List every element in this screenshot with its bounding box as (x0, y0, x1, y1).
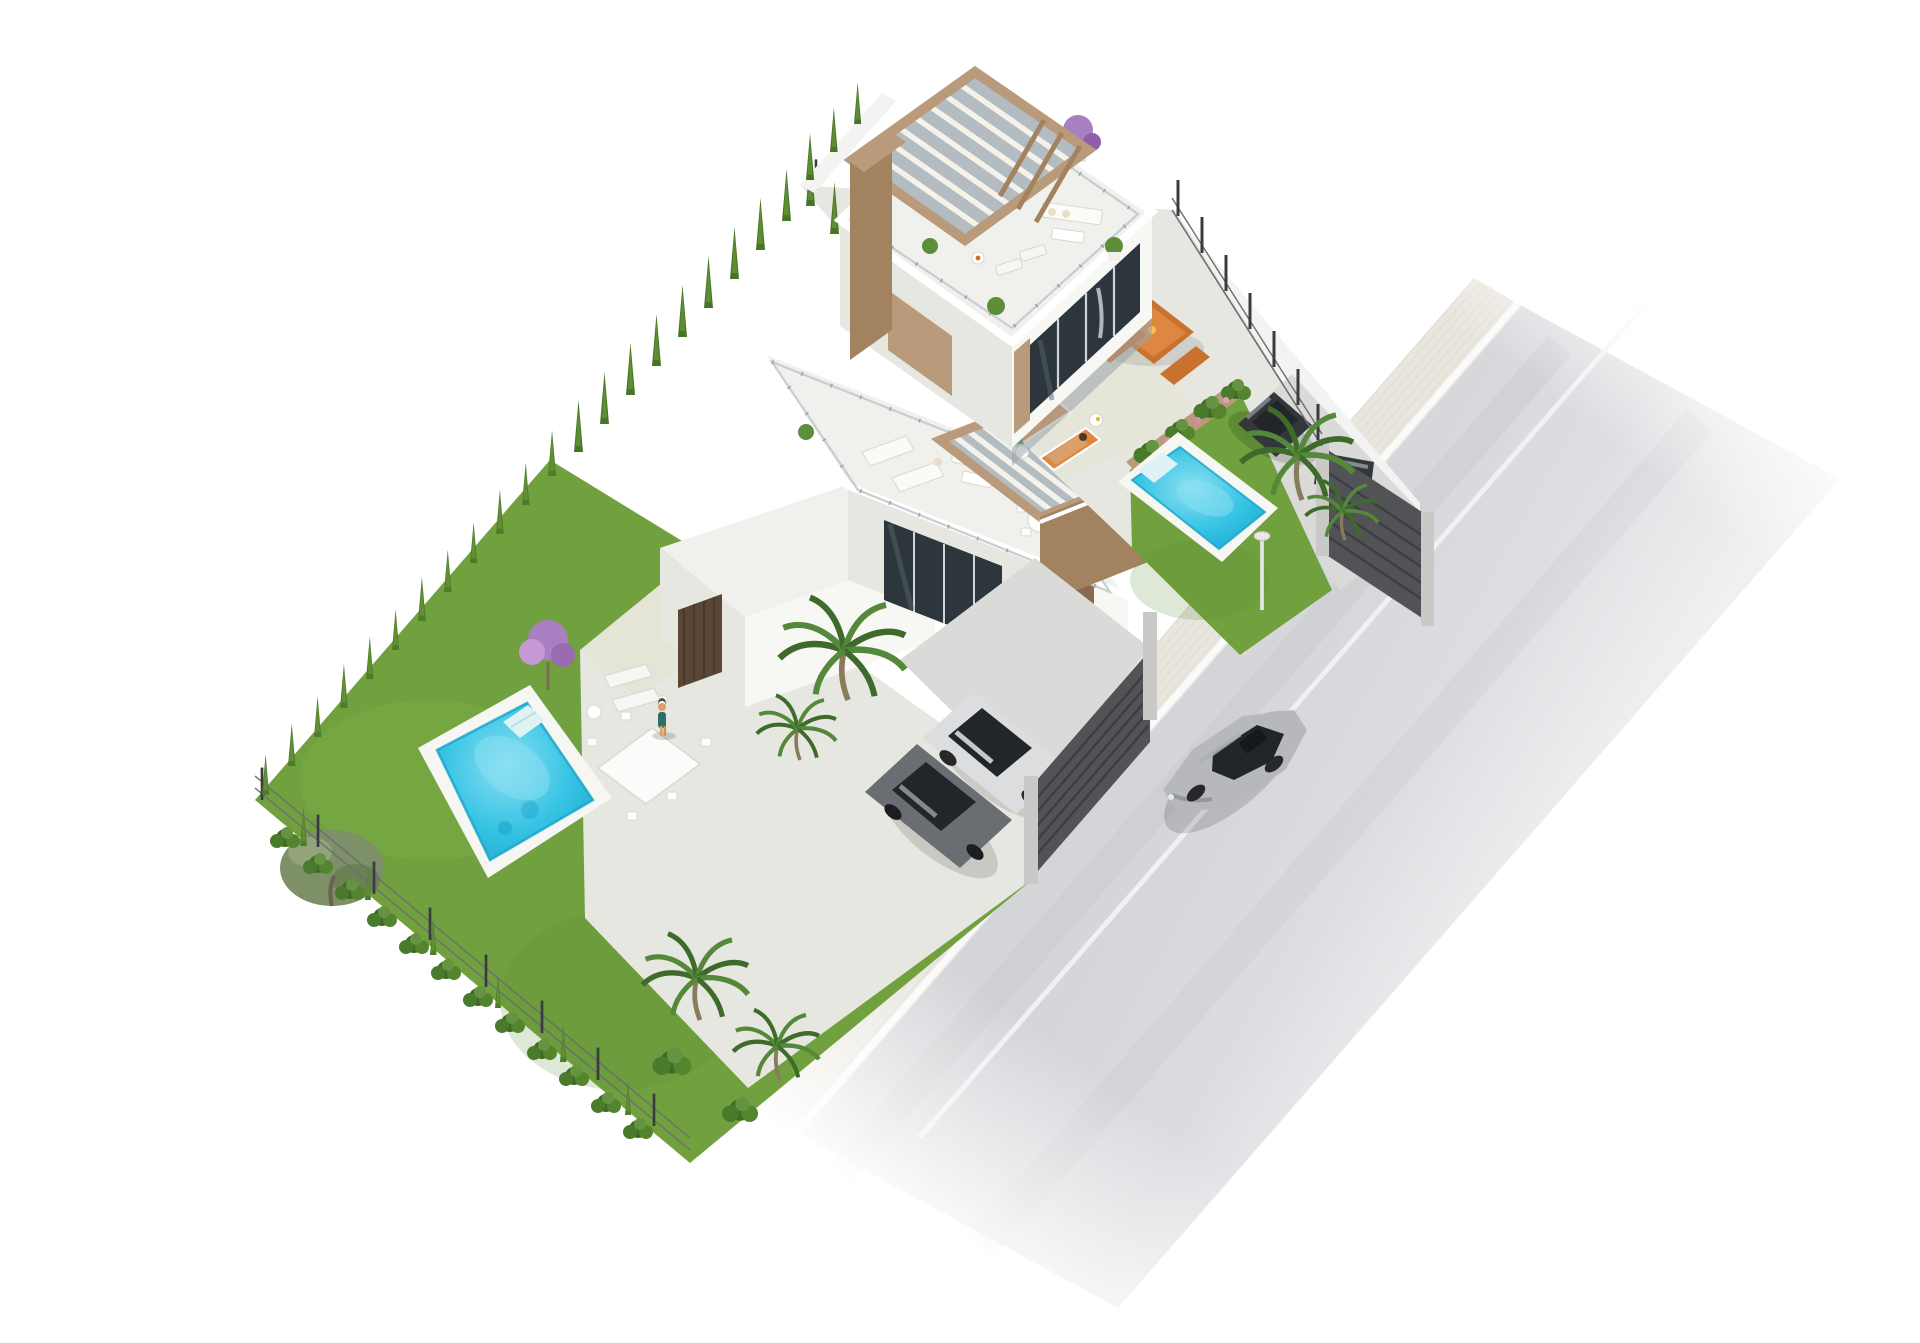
cushion (1062, 210, 1070, 218)
gate-pillar (1143, 612, 1157, 720)
pool-depth-spot (521, 801, 539, 819)
pool-depth-spot (498, 821, 512, 835)
scene-canvas (0, 0, 1920, 1343)
headlight (1168, 794, 1174, 800)
potted-plant (987, 297, 1005, 315)
lawn-shade (1130, 540, 1270, 620)
site-plan-render (0, 0, 1920, 1343)
plant-pot (1108, 252, 1120, 261)
person-head (1079, 433, 1087, 441)
cushion (1048, 208, 1056, 216)
potted-plant (798, 424, 814, 440)
drink (1096, 417, 1100, 421)
side-table (1090, 414, 1103, 427)
gate-pillar (1024, 776, 1038, 884)
person-head (658, 703, 666, 711)
cushion (934, 458, 943, 467)
gate-pillar (1421, 512, 1434, 626)
villa-a-wood-pier (1014, 338, 1030, 434)
potted-plant (922, 238, 938, 254)
fire-bowl (976, 256, 981, 261)
person-body (658, 712, 666, 728)
side-table (587, 705, 601, 719)
